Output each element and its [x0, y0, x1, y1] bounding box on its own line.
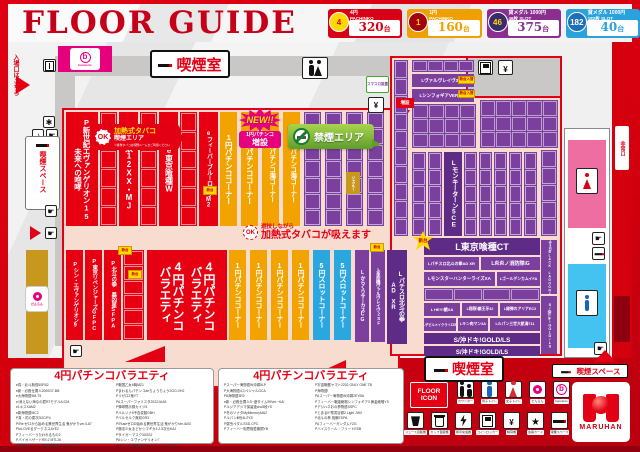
machine-box — [395, 61, 407, 78]
machine-bar: Lキン肉マン3A — [458, 318, 488, 331]
cup-glyph — [411, 415, 420, 426]
cigarette-icon — [158, 60, 172, 69]
machine-box — [395, 149, 407, 166]
machine-box — [124, 295, 143, 309]
machine-box — [480, 170, 491, 186]
bubble-text: 加熱式タバコ 喫煙エリア ※紙巻タバコは喫煙ルームをご利用ください — [114, 128, 170, 147]
machine-box — [326, 161, 341, 176]
machine-box — [460, 134, 475, 147]
cigarette-icon — [562, 368, 572, 374]
machine-label-group: 1円パチンココーナー — [234, 263, 241, 328]
machine-column: 1円パチンココーナー — [292, 250, 309, 340]
machine-label: バラエティ — [159, 266, 171, 324]
machine-bar: S/沖ドキ!GOLD/LS — [424, 333, 540, 344]
machine-label-group: P北斗の拳 暴凶星SFPA — [110, 261, 116, 329]
machine-label: AD XR — [391, 283, 397, 311]
machine-box — [395, 201, 407, 218]
machine-box-column — [509, 152, 522, 236]
count-badge: 44円PACHINKO320台 — [328, 9, 402, 38]
machine-box — [347, 194, 362, 209]
legend-title: 4円パチンコバラエティ — [224, 370, 398, 383]
machine-box — [465, 186, 476, 202]
machine-box — [181, 151, 196, 169]
bancierto-legend-item: bancierto — [551, 381, 572, 404]
smoking-room-label: 喫煙室 — [452, 359, 494, 379]
machine-box — [512, 101, 526, 116]
machine-box — [512, 132, 526, 147]
legend-line: Pフィーバー相思相愛機関YB — [224, 427, 307, 433]
floor-icon-label: 携帯充電器 — [455, 430, 472, 435]
machine-box — [445, 134, 460, 147]
counter-glyph — [467, 389, 472, 397]
smoking-space-label: 喫煙スペース — [576, 366, 620, 377]
woman-icon — [505, 381, 522, 398]
badge-count: 40台 — [587, 20, 638, 36]
machine-box — [429, 134, 444, 147]
charge-glyph — [459, 415, 468, 427]
charge-icon — [455, 412, 472, 429]
floor-icon-label: コインロッカー — [476, 430, 499, 435]
maruhan-label: MARUHAN — [579, 424, 622, 431]
machine-box — [525, 170, 536, 186]
machine-bar: LモンスターハンターライズXA — [424, 272, 495, 286]
floor-map: 非常口 P新世紀エヴァンゲリオン15未来への咆哮e牙狼12XX・MJe東京喰種W… — [8, 42, 632, 358]
machine-box — [395, 79, 407, 96]
heated-tobacco-bubble: OK 加熱式タバコ 喫煙エリア ※紙巻タバコは喫煙ルームをご利用ください — [92, 124, 180, 150]
machine-label-group: ジャグラー — [351, 176, 355, 191]
machine-bar: L翔裂!覇王牙32 — [462, 303, 498, 316]
man-legend-item: 男子トイレ — [479, 381, 500, 404]
count-badge: 11円PACHINKO160台 — [407, 9, 481, 38]
elevator-glyph — [45, 61, 54, 71]
machine-box — [181, 169, 196, 187]
machine-label-group: 1円パチンココーナー — [297, 263, 304, 328]
card-glyph — [509, 412, 513, 430]
machine-box — [305, 210, 320, 225]
coffee-legend-item: カップ自販機 — [429, 412, 450, 435]
danran-icon — [33, 292, 42, 301]
star-legend-item: 会員カード — [525, 412, 546, 435]
machine-label-group: S/沖ドキ!GOLD/LS — [547, 303, 551, 348]
machine-label-group: 4円パチンコバラエティ — [190, 260, 215, 331]
center-ok-badge: OK — [243, 225, 258, 240]
machine-count-badges: 44円PACHINKO320台11円PACHINKO160台46貸メダル 100… — [328, 9, 640, 38]
woman-glyph — [511, 386, 516, 397]
machine-box-column — [412, 152, 426, 236]
counter-glyph — [460, 386, 465, 397]
machine-box — [525, 219, 536, 235]
machine-box — [413, 61, 427, 71]
floor-icon-label: 精算機 — [506, 430, 517, 435]
bubble-line2: 喫煙エリア — [114, 136, 170, 143]
star-glyph — [531, 412, 540, 430]
bubble-line1: 加熱式タバコ — [114, 128, 170, 136]
machine-box — [413, 105, 428, 118]
machine-box-column — [428, 152, 442, 236]
machine-box — [542, 151, 556, 167]
new-machine-tag: 新台 — [118, 246, 132, 255]
floor-icon-label: カップ自販機 — [429, 430, 449, 435]
machine-box — [510, 203, 521, 219]
machine-label-group: 1円パチンココーナー — [225, 133, 233, 205]
machine-label: e東京喰種W — [165, 146, 173, 193]
machine-label-group: L革命機ヴァルヴレイヴ2SF — [376, 267, 381, 325]
machine-label-group: e東京喰種W — [165, 146, 173, 193]
machine-box — [495, 170, 506, 186]
machine-box — [368, 161, 383, 176]
danran-icon — [529, 381, 546, 398]
machine-box — [481, 101, 495, 116]
machine-box — [368, 210, 383, 225]
right-arrow — [30, 226, 41, 240]
machine-box — [459, 61, 473, 71]
new-machine-tag: 新台 — [203, 186, 217, 195]
machine-column: 1円パチンココーナー — [220, 112, 237, 226]
machine-box-column — [479, 152, 492, 236]
bancierto-icon — [553, 381, 570, 398]
badge-count: 375台 — [508, 20, 559, 36]
machine-label: 1円パチンココーナー — [225, 133, 233, 205]
machine-column: P北斗の拳 暴凶星SFPA — [104, 250, 121, 340]
machine-label: S/沖ドキ!GOLD/LS — [547, 303, 551, 348]
machine-box-column — [394, 60, 408, 236]
smoking-space-left: 喫煙スペース — [25, 136, 60, 210]
machine-label: 5円スロットコーナー — [339, 263, 346, 328]
machine-box — [495, 153, 506, 169]
counter-legend-item: カウンター — [455, 381, 476, 404]
machine-box — [495, 203, 506, 219]
machine-box — [483, 289, 511, 300]
machine-box — [480, 186, 491, 202]
machine-bar: Lルパン三世大航海711 — [490, 318, 540, 331]
machine-label-group: eフィーバーブルーロックM2 — [206, 131, 212, 208]
machine-box — [395, 131, 407, 148]
machine-box — [124, 281, 143, 295]
smoking-room-top: 喫煙室 — [150, 50, 230, 78]
machine-column: 4円パチンコバラエティ4円パチンコバラエティ — [147, 250, 227, 340]
machine-box — [429, 186, 441, 202]
machine-box-column — [180, 112, 197, 226]
hand-pointer-icon — [70, 345, 82, 357]
smoke-legend-item: 喫煙スペース — [549, 412, 570, 435]
no-smoking-icon — [293, 128, 310, 145]
machine-box — [101, 151, 116, 169]
machine-box — [305, 194, 320, 209]
floor-icon-line1: FLOOR — [418, 388, 441, 395]
machine-box — [496, 101, 510, 116]
floor-icon-label: だんらん — [530, 399, 544, 404]
badge-circle: 1 — [408, 12, 428, 32]
machine-box — [481, 117, 495, 132]
hand-pointer-icon — [45, 205, 57, 217]
machine-box — [480, 203, 491, 219]
smoking-space-bottom: 喫煙スペース — [552, 364, 628, 378]
locker-icon — [479, 412, 496, 429]
legend-line: Pデジハネ新鬼武者2サイドバイン255PB — [116, 444, 208, 450]
charge-legend-item: 携帯充電器 — [453, 412, 474, 435]
bancierto-glyph — [556, 384, 567, 395]
machine-box — [395, 219, 407, 236]
machine-label-group: Lモンキーターン5CE — [450, 160, 457, 228]
machine-box — [395, 166, 407, 183]
machine-label-group: Lパチスロ北斗の拳AD XR — [391, 272, 404, 322]
machine-box — [496, 132, 510, 147]
machine-column: S/沖ドキ!GOLD/LS — [541, 296, 557, 354]
machine-box — [512, 117, 526, 132]
machine-box — [496, 117, 510, 132]
new-machine-tag: 新台入替 — [458, 90, 475, 98]
machine-column: L革命機ヴァルヴレイヴ2SF — [371, 250, 385, 342]
machine-box — [395, 184, 407, 201]
machine-label-group: P新世紀エヴァンゲリオン15未来への咆哮 — [74, 118, 90, 221]
machine-label: 1円パチンココーナー — [255, 263, 262, 328]
machine-box — [465, 170, 476, 186]
machine-label: 5円スロットコーナー — [318, 263, 325, 328]
machine-label: スマスロBLACK LAGOON4 — [547, 240, 550, 294]
machine-box — [543, 117, 557, 132]
maruhan-logo-box: MARUHAN — [572, 382, 630, 442]
machine-box — [428, 61, 442, 71]
cup-legend-item: ジュース自販機 — [405, 412, 426, 435]
machine-bar: L炎炎ノ消防隊iG — [481, 257, 540, 270]
man-glyph — [487, 386, 492, 397]
machine-column: ジャグラー — [346, 172, 360, 194]
machine-box — [101, 169, 116, 187]
bancierto-banner: bancierto — [58, 46, 112, 72]
entrance-arrow — [16, 76, 30, 94]
machine-box — [124, 325, 143, 339]
header-band: FLOOR GUIDE 44円PACHINKO320台11円PACHINKO16… — [8, 4, 632, 42]
new-sub-line2: 増設 — [241, 138, 279, 147]
bubble-caption: ※紙巻タバコは喫煙ルームをご利用ください — [114, 143, 170, 147]
machine-label: P北斗の拳 暴凶星SFPA — [110, 261, 116, 329]
machine-label: P東京リベンジャーズGFPC — [91, 259, 97, 332]
machine-label: L革命機ヴァルヴレイヴ2SF — [376, 267, 381, 325]
machine-box — [368, 178, 383, 193]
machine-box — [326, 194, 341, 209]
machine-label-group: Pシン・エヴァンゲリオン9 — [72, 262, 78, 328]
machine-label-group: LからくりサーカスCG — [360, 270, 365, 323]
machine-box — [542, 185, 556, 201]
green-info-label: スマスロ設置 — [367, 82, 388, 87]
machine-label: 1円パチンココーナー — [276, 263, 283, 328]
machine-bar: LゴールデンカムイFA — [497, 272, 540, 286]
machine-label: バラエティ — [190, 266, 202, 324]
floor-icon-label: 喫煙スペース — [550, 430, 570, 435]
cigarette-icon — [434, 365, 448, 374]
machine-box-column — [524, 152, 537, 236]
machine-label: LからくりサーカスCG — [360, 270, 365, 323]
machine-box — [445, 119, 460, 132]
machine-grid — [412, 104, 476, 148]
floor-guide-poster: FLOOR GUIDE 44円PACHINKO320台11円PACHINKO16… — [0, 0, 640, 452]
machine-box-column — [541, 150, 557, 236]
count-badge: 46貸メダル 1000円46枚 SLOT375台 — [487, 9, 561, 38]
machine-box-column — [464, 152, 477, 236]
machine-box — [460, 119, 475, 132]
legend-title: 4円パチンコバラエティ — [16, 370, 208, 383]
locker-glyph — [482, 415, 493, 427]
machine-box — [181, 188, 196, 206]
machine-column: 5円スロットコーナー — [313, 250, 330, 340]
machine-box — [480, 153, 491, 169]
machine-label: P新世紀エヴァンゲリオン15 — [83, 118, 91, 221]
badge-circle: 46 — [488, 12, 508, 32]
machine-box — [429, 203, 441, 219]
machine-box — [525, 186, 536, 202]
machine-box — [141, 188, 156, 206]
machine-box — [181, 207, 196, 225]
machine-box — [413, 186, 425, 202]
floor-icon-line2: ICON — [421, 395, 437, 402]
center-note-large: 加熱式タバコが吸えます — [261, 230, 371, 241]
no-smoking-label: 禁煙エリア — [314, 129, 364, 144]
machine-box — [429, 105, 444, 118]
machine-box — [465, 153, 476, 169]
restroom-icon — [302, 57, 328, 79]
coffee-icon — [431, 412, 448, 429]
locker-legend-item: コインロッカー — [477, 412, 498, 435]
machine-box — [413, 153, 425, 169]
machine-label-group: 1円パチンココーナー — [276, 263, 283, 328]
machine-label-group: 4円パチンコバラエティ — [159, 260, 184, 331]
machine-box — [429, 170, 441, 186]
machine-box — [429, 119, 444, 132]
machine-box — [101, 188, 116, 206]
machine-box — [413, 170, 425, 186]
machine-label-group: P東京リベンジャーズGFPC — [91, 259, 97, 332]
machine-label: Pシン・エヴァンゲリオン9 — [72, 262, 78, 328]
ok-badge: OK — [95, 129, 111, 145]
machine-box — [305, 178, 320, 193]
danran-legend-item: だんらん — [527, 381, 548, 404]
badge-count: 320台 — [349, 20, 400, 36]
smoke-glyph — [553, 416, 567, 425]
machine-box — [141, 169, 156, 187]
machine-box — [510, 219, 521, 235]
floor-icon-row-1: カウンター男子トイレ女子トイレだんらんbancierto — [455, 381, 572, 404]
machine-label: Lモンキーターン5CE — [450, 160, 457, 228]
machine-box — [425, 289, 453, 300]
machine-bar: L HEY!鏡XA — [424, 303, 460, 316]
smoking-space-label: 喫煙スペース — [39, 151, 46, 193]
machine-box — [543, 101, 557, 116]
expand-tag: 増設 — [396, 98, 414, 108]
machine-box-column — [494, 152, 507, 236]
badge-unit: 台 — [463, 24, 470, 33]
cigarette-icon — [36, 140, 50, 149]
machine-grid — [412, 60, 474, 72]
man-glyph — [309, 65, 314, 76]
machine-box — [454, 289, 482, 300]
machine-box — [368, 194, 383, 209]
new-label: NEW!! — [239, 110, 281, 131]
legend-4yen-variety-2: 4円パチンコバラエティ Pスーパー海物語IN沖縄5LPP大海物語4スペシャルGC… — [218, 368, 404, 444]
bancierto-logo: bancierto — [70, 48, 100, 70]
smoking-room-bottom: 喫煙室 — [424, 356, 504, 382]
badge-unit: 台 — [617, 24, 624, 33]
card-icon — [503, 412, 520, 429]
floor-icon-label: カウンター — [457, 399, 474, 404]
new-machine-tag: 新台 — [370, 243, 384, 252]
machine-bar: S/沖ドキ!GOLD/LS — [424, 346, 540, 356]
facility-icon — [43, 116, 55, 128]
machine-grid — [480, 100, 558, 148]
machine-box — [510, 153, 521, 169]
machine-label: eフィーバーブルーロックM2 — [206, 131, 212, 208]
hand-pointer-icon — [45, 227, 57, 239]
machine-box — [465, 203, 476, 219]
man-icon — [481, 381, 498, 398]
machine-column: Lモンキーターン5CE — [444, 152, 462, 236]
page-title: FLOOR GUIDE — [22, 4, 297, 42]
maruhan-icon — [583, 394, 619, 422]
machine-box — [495, 219, 506, 235]
legend-line: P緋弾のアリア・緋緋神降臨~199Ver.7Q6 — [16, 444, 108, 450]
machine-box — [495, 186, 506, 202]
danran-label: だんらん — [31, 302, 43, 306]
machine-box-column — [123, 250, 144, 340]
badge-unit: 台 — [542, 24, 549, 33]
machine-box — [510, 170, 521, 186]
badge-circle: 4 — [329, 12, 349, 32]
machine-bar: Lパチスロ北斗の拳AD XR — [424, 257, 479, 270]
machine-box — [510, 186, 521, 202]
machine-box — [413, 203, 425, 219]
machine-label: 1円パチンココーナー — [297, 263, 304, 328]
machine-box — [511, 289, 539, 300]
machine-box — [480, 219, 491, 235]
machine-box — [326, 178, 341, 193]
center-note-text: 遊技しながら 加熱式タバコが吸えます — [261, 224, 371, 241]
machine-box — [141, 207, 156, 225]
atm-icon — [368, 97, 384, 113]
machine-box — [527, 101, 541, 116]
count-badge: 182貸メダル 1000円182枚 SLOT40台 — [566, 9, 640, 38]
legend-arrow-1 — [125, 346, 165, 362]
machine-column: Pシン・エヴァンゲリオン9 — [66, 250, 83, 340]
danran-logo: だんらん — [25, 286, 49, 312]
machine-label: Lパチスロ北斗の拳 — [398, 272, 404, 322]
machine-box — [305, 161, 320, 176]
machine-column: eフィーバーブルーロックM2 — [199, 112, 218, 226]
badge-circle: 182 — [567, 12, 587, 32]
center-note: OK 遊技しながら 加熱式タバコが吸えます — [243, 224, 371, 241]
smoke-icon — [551, 412, 568, 429]
machine-label: 4円パチンコ — [203, 260, 215, 331]
machine-box — [543, 132, 557, 147]
machine-box — [525, 153, 536, 169]
machine-label: ジャグラー — [351, 176, 355, 191]
machine-column: LからくりサーカスCG — [355, 250, 369, 342]
machine-box — [527, 117, 541, 132]
machine-box — [429, 153, 441, 169]
new-expansion-badge: NEW!! 1円パチンコ 増設 — [239, 110, 281, 156]
machine-bar: LデビルメイクライZZB — [424, 318, 456, 331]
bancierto-label: bancierto — [78, 63, 92, 67]
machine-label-group: 1円パチンココーナー — [255, 263, 262, 328]
machine-bar: L東京喰種CT — [424, 238, 540, 255]
new-sub: 1円パチンコ 増設 — [239, 131, 281, 148]
machine-box — [395, 114, 407, 131]
floor-icon-label: bancierto — [554, 399, 568, 404]
machine-box — [527, 132, 541, 147]
legend-4yen-variety-1: 4円パチンコバラエティ e真・北斗無双5SR02e新・必殺仕置人2000GT-B… — [10, 368, 214, 444]
danran-glyph — [533, 385, 542, 394]
no-smoking-banner: 禁煙エリア — [288, 124, 374, 149]
machine-label-group: スマスロBLACK LAGOON4 — [547, 240, 550, 294]
floor-icon-title-box: FLOOR ICON — [410, 382, 448, 408]
